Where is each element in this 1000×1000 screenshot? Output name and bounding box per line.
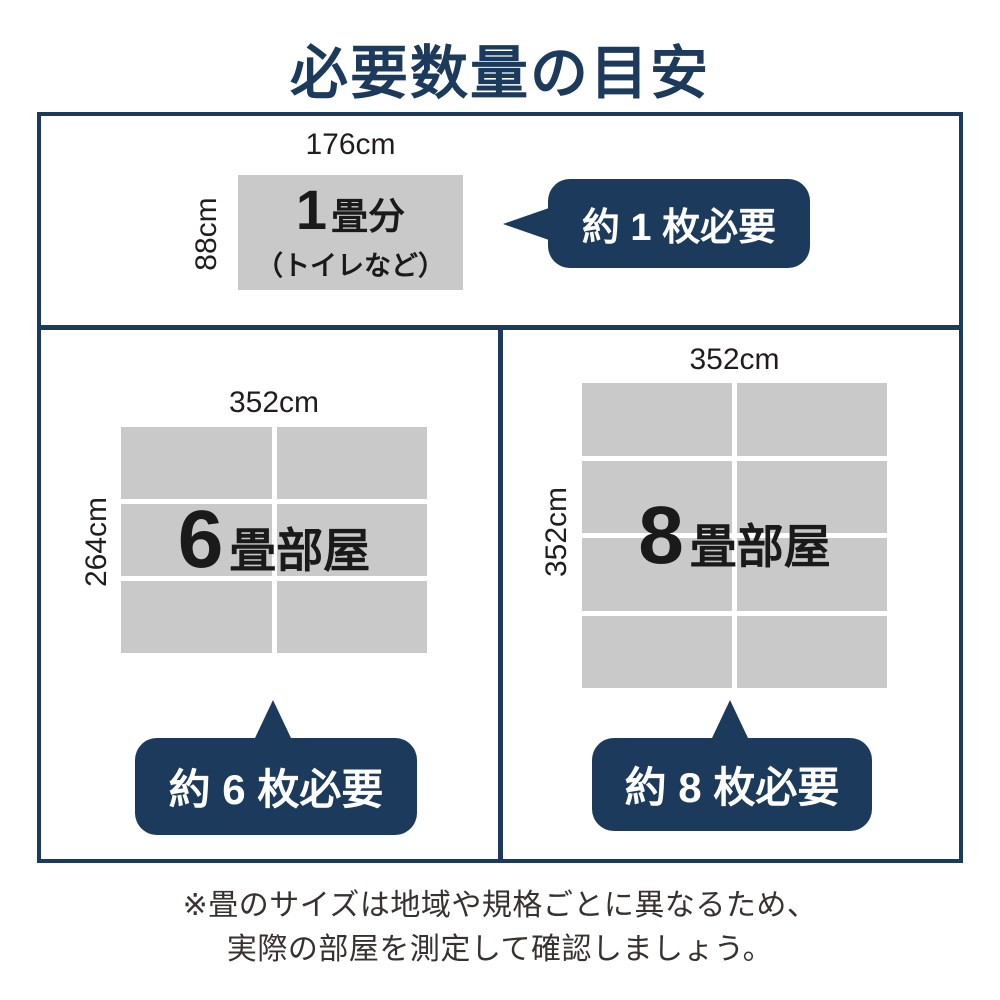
footer-note-line1: ※畳のサイズは地域や規格ごとに異なるため、 (0, 884, 1000, 928)
tatami-cell (121, 427, 272, 499)
tatami-cell (582, 616, 732, 689)
one-tatami-width-label: 176cm (238, 128, 463, 162)
eight-tatami-height-label: 352cm (540, 457, 574, 607)
eight-tatami-bubble: 約 8 枚必要 (592, 738, 872, 831)
eight-tatami-bubble-label: 約 8 枚必要 (625, 754, 840, 815)
tatami-cell (737, 538, 887, 611)
one-tatami-note: （トイレなど） (256, 244, 445, 283)
tatami-cell (121, 581, 272, 653)
footer-note: ※畳のサイズは地域や規格ごとに異なるため、 実際の部屋を測定して確認しましょう。 (0, 884, 1000, 972)
tatami-cell (277, 581, 428, 653)
six-tatami-bubble: 約 6 枚必要 (135, 738, 417, 835)
infographic: 必要数量の目安 176cm 88cm 1 畳分 （トイレなど） 約 1 枚必要 … (0, 0, 1000, 1000)
one-tatami-number: 1 (296, 182, 327, 238)
bubble-tail-up-icon (712, 700, 748, 738)
page-title: 必要数量の目安 (0, 26, 1000, 110)
tatami-cell (737, 383, 887, 456)
bubble-tail-up-icon (255, 700, 291, 738)
tatami-cell (277, 504, 428, 576)
one-tatami-rect: 1 畳分 （トイレなど） (238, 175, 463, 290)
one-tatami-title: 1 畳分 (296, 182, 405, 238)
bubble-tail-left-icon (503, 208, 549, 240)
vertical-divider (498, 325, 503, 859)
one-tatami-bubble: 約 1 枚必要 (548, 179, 810, 268)
tatami-cell (582, 538, 732, 611)
eight-tatami-grid (582, 383, 887, 688)
six-tatami-grid (121, 427, 427, 653)
one-tatami-height-label: 88cm (190, 164, 224, 304)
one-tatami-suffix: 畳分 (331, 198, 405, 235)
eight-tatami-width-label: 352cm (582, 343, 887, 377)
one-tatami-bubble-label: 約 1 枚必要 (582, 196, 776, 251)
six-tatami-bubble-label: 約 6 枚必要 (169, 756, 384, 817)
tatami-cell (737, 616, 887, 689)
footer-note-line2: 実際の部屋を測定して確認しましょう。 (0, 928, 1000, 972)
six-tatami-width-label: 352cm (121, 386, 427, 420)
tatami-cell (121, 504, 272, 576)
tatami-cell (582, 461, 732, 534)
tatami-cell (277, 427, 428, 499)
six-tatami-height-label: 264cm (80, 467, 114, 617)
tatami-cell (737, 461, 887, 534)
content-frame: 176cm 88cm 1 畳分 （トイレなど） 約 1 枚必要 352cm 26… (37, 112, 963, 863)
tatami-cell (582, 383, 732, 456)
